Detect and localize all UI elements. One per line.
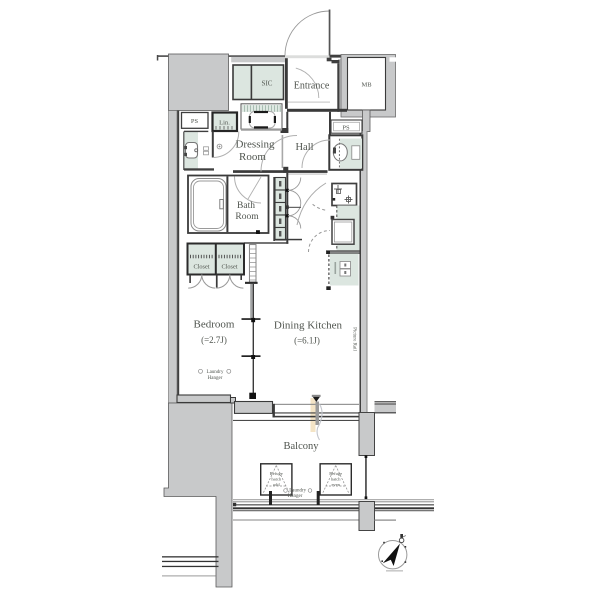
svg-text:Dressing: Dressing xyxy=(235,139,275,151)
svg-text:Room: Room xyxy=(239,151,266,163)
svg-text:odd: odd xyxy=(273,482,281,487)
svg-text:Hall: Hall xyxy=(295,142,313,153)
svg-text:Hanger: Hanger xyxy=(208,376,223,381)
svg-text:Dining Kitchen: Dining Kitchen xyxy=(274,320,343,332)
svg-text:Closet: Closet xyxy=(193,263,209,270)
svg-text:Hanger: Hanger xyxy=(288,494,303,499)
svg-text:(=2.7J): (=2.7J) xyxy=(201,335,227,345)
svg-text:PS: PS xyxy=(342,125,350,132)
svg-text:Laundry: Laundry xyxy=(289,489,306,494)
svg-text:Room: Room xyxy=(235,212,259,222)
svg-text:(=6.1J): (=6.1J) xyxy=(294,336,320,346)
svg-text:Picture Rail: Picture Rail xyxy=(352,327,357,351)
svg-text:hatch: hatch xyxy=(331,477,341,482)
svg-text:Bedroom: Bedroom xyxy=(194,319,235,331)
svg-text:Refuge: Refuge xyxy=(329,471,342,476)
svg-text:Closet: Closet xyxy=(221,263,237,270)
svg-text:Entrance: Entrance xyxy=(294,81,330,92)
svg-text:Balcony: Balcony xyxy=(284,441,320,452)
svg-text:even: even xyxy=(331,482,340,487)
svg-text:Laundry: Laundry xyxy=(207,370,224,375)
svg-text:PS: PS xyxy=(191,118,199,125)
svg-text:Lin.: Lin. xyxy=(219,120,230,127)
svg-text:MB: MB xyxy=(361,82,372,89)
svg-text:SIC: SIC xyxy=(262,80,273,88)
svg-text:Refuge: Refuge xyxy=(270,471,283,476)
svg-text:Bath: Bath xyxy=(237,201,255,211)
svg-text:hatch: hatch xyxy=(271,477,281,482)
